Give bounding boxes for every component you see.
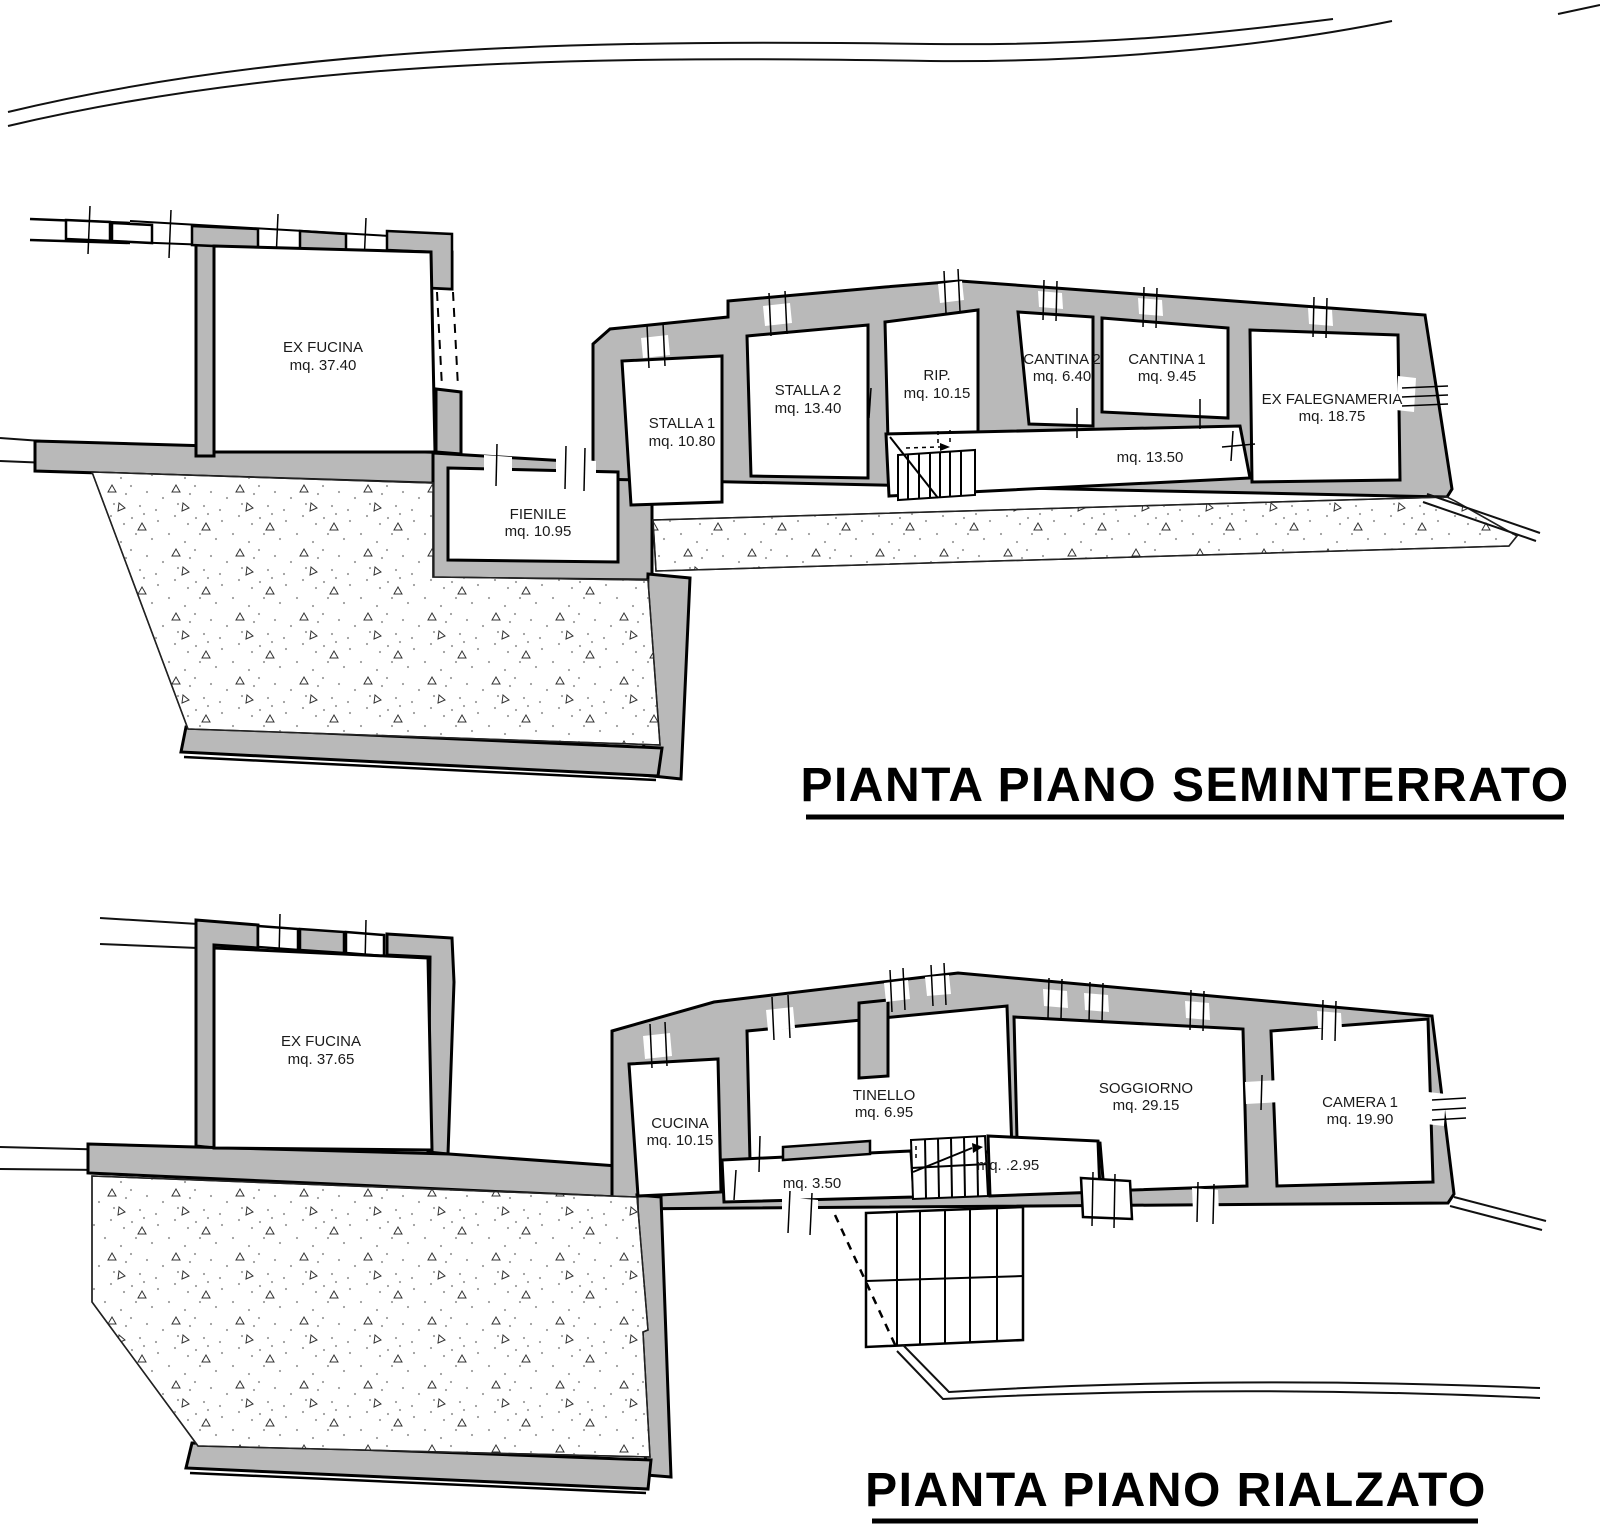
room-area-tinello: mq. 6.95 bbox=[855, 1104, 913, 1121]
room-label-ex-fucina: EX FUCINA bbox=[283, 339, 363, 356]
wall-exfucina-left bbox=[196, 243, 214, 456]
room-area-rip: mq. 10.15 bbox=[904, 385, 971, 402]
window-gap bbox=[763, 303, 792, 326]
room-area-soggiorno: mq. 29.15 bbox=[1113, 1097, 1180, 1114]
plan-seminterrato: EX FUCINA mq. 37.40 STALLA 1 mq. 10.80 S… bbox=[0, 206, 1570, 817]
door-tick bbox=[759, 1136, 760, 1172]
window-cell bbox=[258, 926, 298, 950]
room-area-ex-falegnameria: mq. 18.75 bbox=[1299, 408, 1366, 425]
window-gap bbox=[643, 1033, 672, 1059]
external-staircase bbox=[835, 1207, 1023, 1349]
room-label-ex-falegnameria: EX FALEGNAMERIA bbox=[1262, 391, 1403, 408]
room-label-cantina-1: CANTINA 1 bbox=[1128, 351, 1206, 368]
room-area-cantina-2: mq. 6.40 bbox=[1033, 368, 1091, 385]
terrain-areas-bottom bbox=[92, 1176, 650, 1457]
room-label-rip: RIP. bbox=[923, 367, 950, 384]
wall-exfucina-pillar bbox=[436, 389, 461, 454]
room-area-cucina: mq. 10.15 bbox=[647, 1132, 714, 1149]
title-seminterrato: PIANTA PIANO SEMINTERRATO bbox=[800, 759, 1569, 817]
room-label-fienile: FIENILE bbox=[510, 506, 567, 523]
landing-area-label: mq. .2.95 bbox=[977, 1157, 1040, 1174]
window-gap bbox=[641, 335, 670, 358]
terrain-large-bottom-stipple bbox=[92, 1176, 650, 1457]
room-label-stalla-2: STALLA 2 bbox=[775, 382, 841, 399]
entry-door-gap bbox=[782, 1197, 818, 1226]
window-gap bbox=[1138, 298, 1163, 316]
window-gap bbox=[1185, 1001, 1210, 1020]
room-label-stalla-1: STALLA 1 bbox=[649, 415, 715, 432]
room-label-cantina-2: CANTINA 2 bbox=[1023, 351, 1101, 368]
door-gap bbox=[484, 455, 512, 475]
corridor-area-label: mq. 13.50 bbox=[1117, 449, 1184, 466]
window-cell bbox=[112, 223, 152, 243]
room-label-ex-fucina-2: EX FUCINA bbox=[281, 1033, 361, 1050]
floor-plan-sheet: EX FUCINA mq. 37.40 STALLA 1 mq. 10.80 S… bbox=[0, 0, 1600, 1526]
external-paths bbox=[897, 1197, 1546, 1399]
room-label-camera-1: CAMERA 1 bbox=[1322, 1094, 1398, 1111]
room-area-stalla-1: mq. 10.80 bbox=[649, 433, 716, 450]
door-gap bbox=[1317, 1011, 1342, 1030]
room-label-tinello: TINELLO bbox=[853, 1087, 916, 1104]
floor-plan-drawing: EX FUCINA mq. 37.40 STALLA 1 mq. 10.80 S… bbox=[0, 0, 1600, 1526]
window-gap bbox=[1038, 291, 1063, 309]
plan-rialzato: EX FUCINA mq. 37.65 CUCINA mq. 10.15 TIN… bbox=[0, 914, 1546, 1521]
wall-stub-tinello bbox=[859, 1000, 888, 1078]
window-gap bbox=[1084, 993, 1109, 1012]
door-gap bbox=[766, 1007, 795, 1031]
room-area-ex-fucina: mq. 37.40 bbox=[290, 357, 357, 374]
masonry-pier bbox=[300, 929, 344, 953]
window-gap bbox=[884, 980, 910, 1002]
room-area-stalla-2: mq. 13.40 bbox=[775, 400, 842, 417]
door-gap bbox=[1192, 1188, 1219, 1214]
terrain-band-top-stipple bbox=[653, 497, 1517, 571]
french-door-box bbox=[1081, 1178, 1132, 1219]
window-gap bbox=[556, 458, 596, 477]
ground-lines-left-bottom bbox=[0, 918, 198, 1171]
masonry-pier bbox=[192, 226, 258, 248]
room-area-camera-1: mq. 19.90 bbox=[1327, 1111, 1394, 1128]
door-gap bbox=[1245, 1080, 1281, 1104]
plan-title-seminterrato: PIANTA PIANO SEMINTERRATO bbox=[800, 759, 1569, 812]
room-label-cucina: CUCINA bbox=[651, 1115, 709, 1132]
room-area-fienile: mq. 10.95 bbox=[505, 523, 572, 540]
plan-title-rialzato: PIANTA PIANO RIALZATO bbox=[865, 1464, 1487, 1517]
room-label-soggiorno: SOGGIORNO bbox=[1099, 1080, 1193, 1097]
window-gap bbox=[1308, 308, 1333, 326]
terrain-areas-top bbox=[92, 472, 1517, 745]
title-rialzato: PIANTA PIANO RIALZATO bbox=[865, 1464, 1487, 1521]
dashed-opening-exfucina bbox=[437, 292, 458, 387]
terrain-contour-lines-top bbox=[8, 5, 1600, 126]
hall-area-label: mq. 3.50 bbox=[783, 1175, 841, 1192]
room-area-cantina-1: mq. 9.45 bbox=[1138, 368, 1196, 385]
window-gap bbox=[925, 975, 951, 996]
room-area-ex-fucina-2: mq. 37.65 bbox=[288, 1051, 355, 1068]
window-gap bbox=[1043, 989, 1068, 1008]
